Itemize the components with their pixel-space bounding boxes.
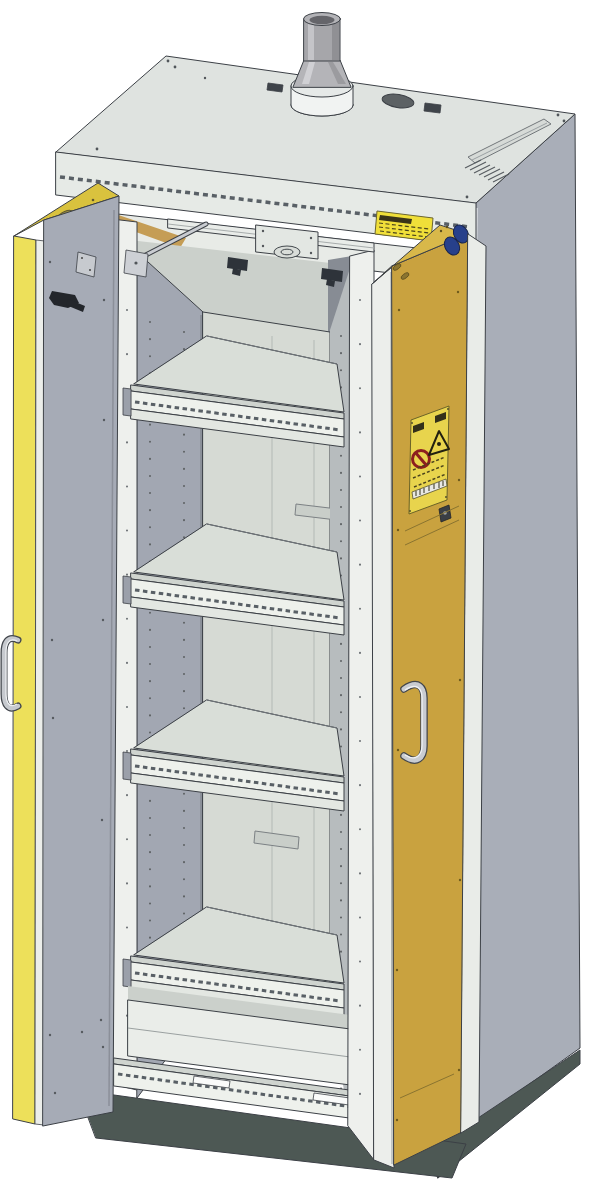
shelf-left-bracket — [123, 576, 131, 604]
left-door-inner-face — [43, 196, 119, 1126]
right-front-post — [348, 250, 374, 1160]
safety-cabinet-illustration — [0, 0, 600, 1183]
cabinet-drawing — [0, 0, 600, 1183]
coordinator-cam-disc — [274, 246, 300, 258]
roof-fitting-right — [424, 103, 441, 113]
left-door-front-face — [13, 236, 36, 1124]
pipe-highlight — [308, 20, 314, 60]
door-hazard-label — [409, 406, 449, 514]
shelf-left-bracket — [123, 388, 131, 416]
screw-head — [92, 199, 95, 202]
exhaust-air-connector — [291, 13, 353, 117]
right-door-inner-face — [392, 234, 468, 1165]
roof-fitting-left — [267, 83, 283, 92]
pipe-shade — [332, 20, 339, 60]
left-door — [4, 183, 119, 1126]
shelf-left-bracket — [123, 959, 131, 987]
pipe-opening — [310, 16, 335, 24]
right-door — [372, 222, 486, 1168]
shelf-left-bracket — [123, 752, 131, 780]
